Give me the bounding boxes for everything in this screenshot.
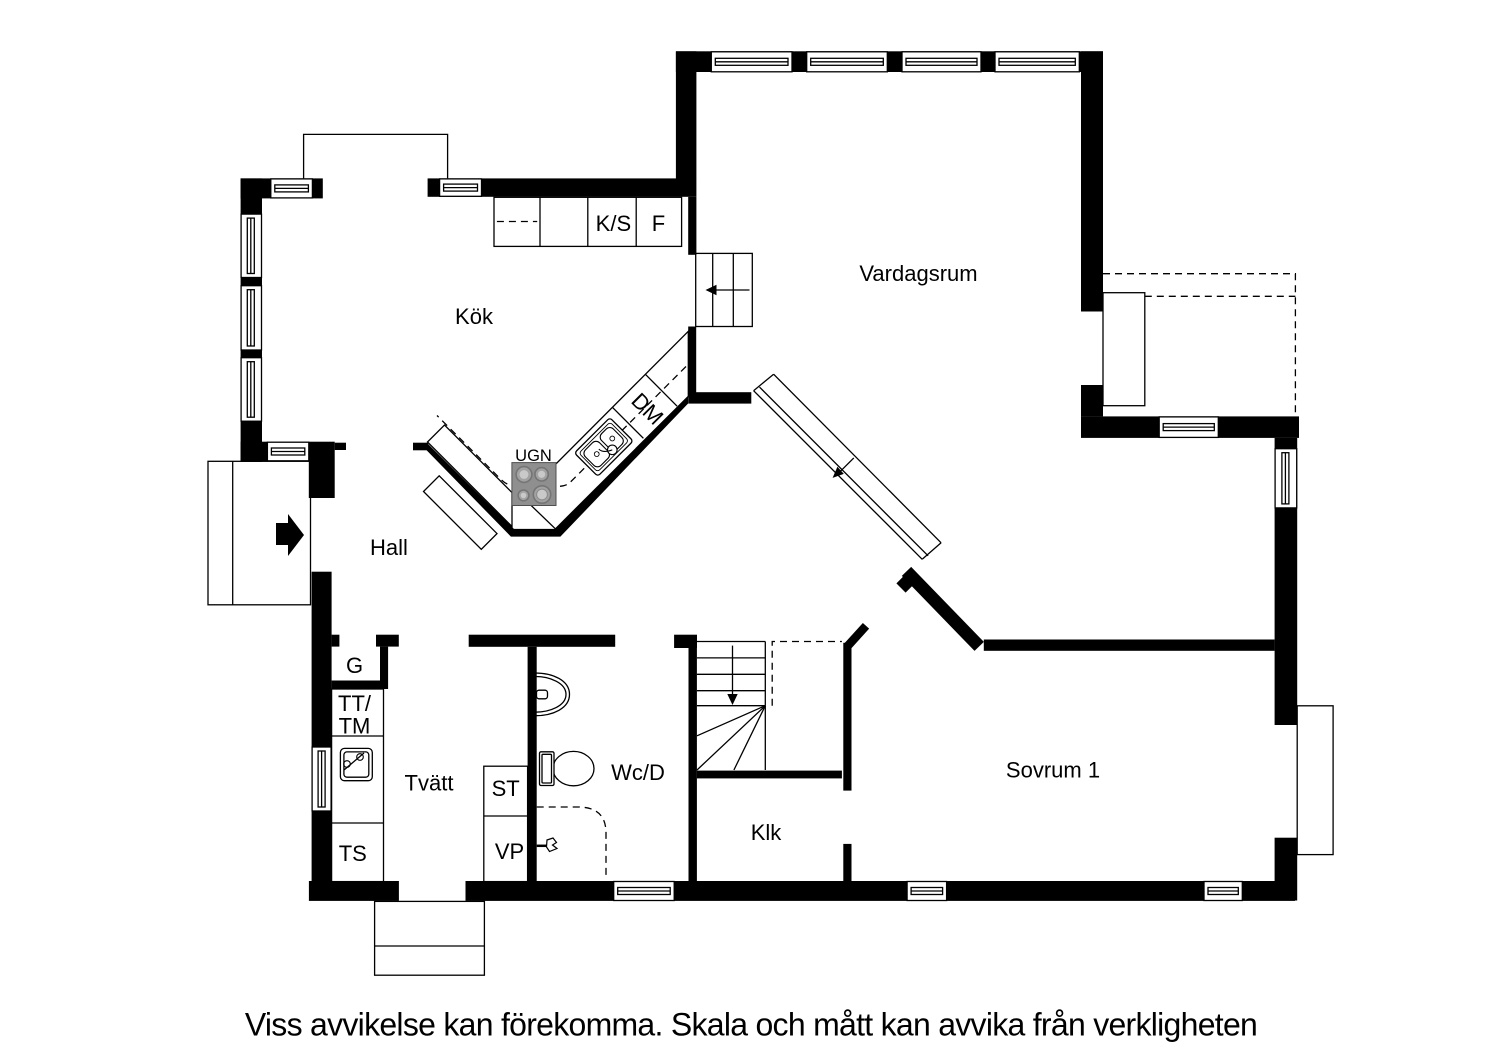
svg-text:VP: VP [495, 839, 524, 864]
svg-text:Kök: Kök [455, 304, 494, 329]
svg-text:Tvätt: Tvätt [405, 771, 454, 796]
svg-text:UGN: UGN [515, 447, 552, 465]
svg-text:Viss avvikelse kan förekomma.: Viss avvikelse kan förekomma. Skala och … [245, 1007, 1257, 1043]
svg-text:K/S: K/S [596, 211, 631, 236]
svg-text:TM: TM [339, 714, 371, 739]
svg-text:F: F [652, 211, 665, 236]
svg-text:Vardagsrum: Vardagsrum [859, 261, 977, 286]
svg-text:Wc/D: Wc/D [611, 760, 665, 785]
svg-text:ST: ST [492, 776, 520, 801]
svg-text:Hall: Hall [370, 535, 408, 560]
svg-text:TS: TS [339, 841, 367, 866]
svg-text:G: G [346, 653, 363, 678]
svg-text:TT/: TT/ [338, 691, 372, 716]
svg-text:Sovrum 1: Sovrum 1 [1006, 758, 1100, 783]
svg-text:Klk: Klk [751, 820, 783, 845]
